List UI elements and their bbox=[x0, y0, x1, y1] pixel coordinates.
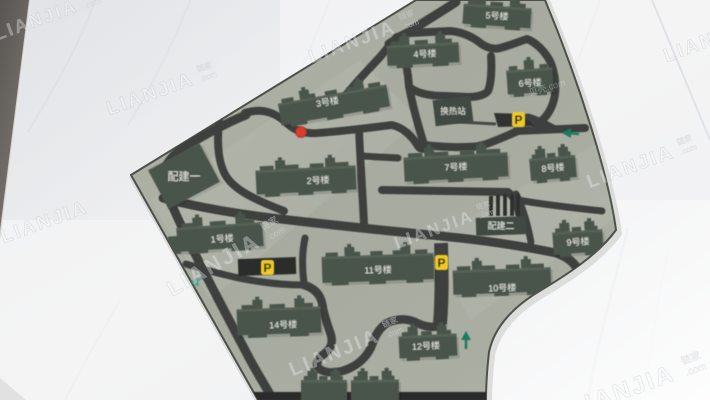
svg-text:9号楼: 9号楼 bbox=[566, 235, 590, 248]
svg-text:5号楼: 5号楼 bbox=[485, 9, 509, 22]
svg-text:12号楼: 12号楼 bbox=[412, 339, 441, 351]
svg-text:4号楼: 4号楼 bbox=[413, 47, 437, 59]
svg-text:10号楼: 10号楼 bbox=[488, 282, 516, 294]
svg-text:配建一: 配建一 bbox=[168, 169, 201, 183]
svg-text:P: P bbox=[437, 256, 445, 270]
svg-text:14号楼: 14号楼 bbox=[269, 318, 297, 330]
svg-text:2号楼: 2号楼 bbox=[306, 174, 330, 186]
svg-text:P: P bbox=[514, 113, 522, 127]
svg-text:8号楼: 8号楼 bbox=[541, 161, 565, 174]
svg-text:11号楼: 11号楼 bbox=[364, 264, 392, 276]
svg-text:7号楼: 7号楼 bbox=[444, 160, 468, 172]
svg-text:换热站: 换热站 bbox=[440, 106, 466, 116]
svg-text:P: P bbox=[263, 261, 271, 275]
svg-text:配建二: 配建二 bbox=[487, 220, 514, 231]
